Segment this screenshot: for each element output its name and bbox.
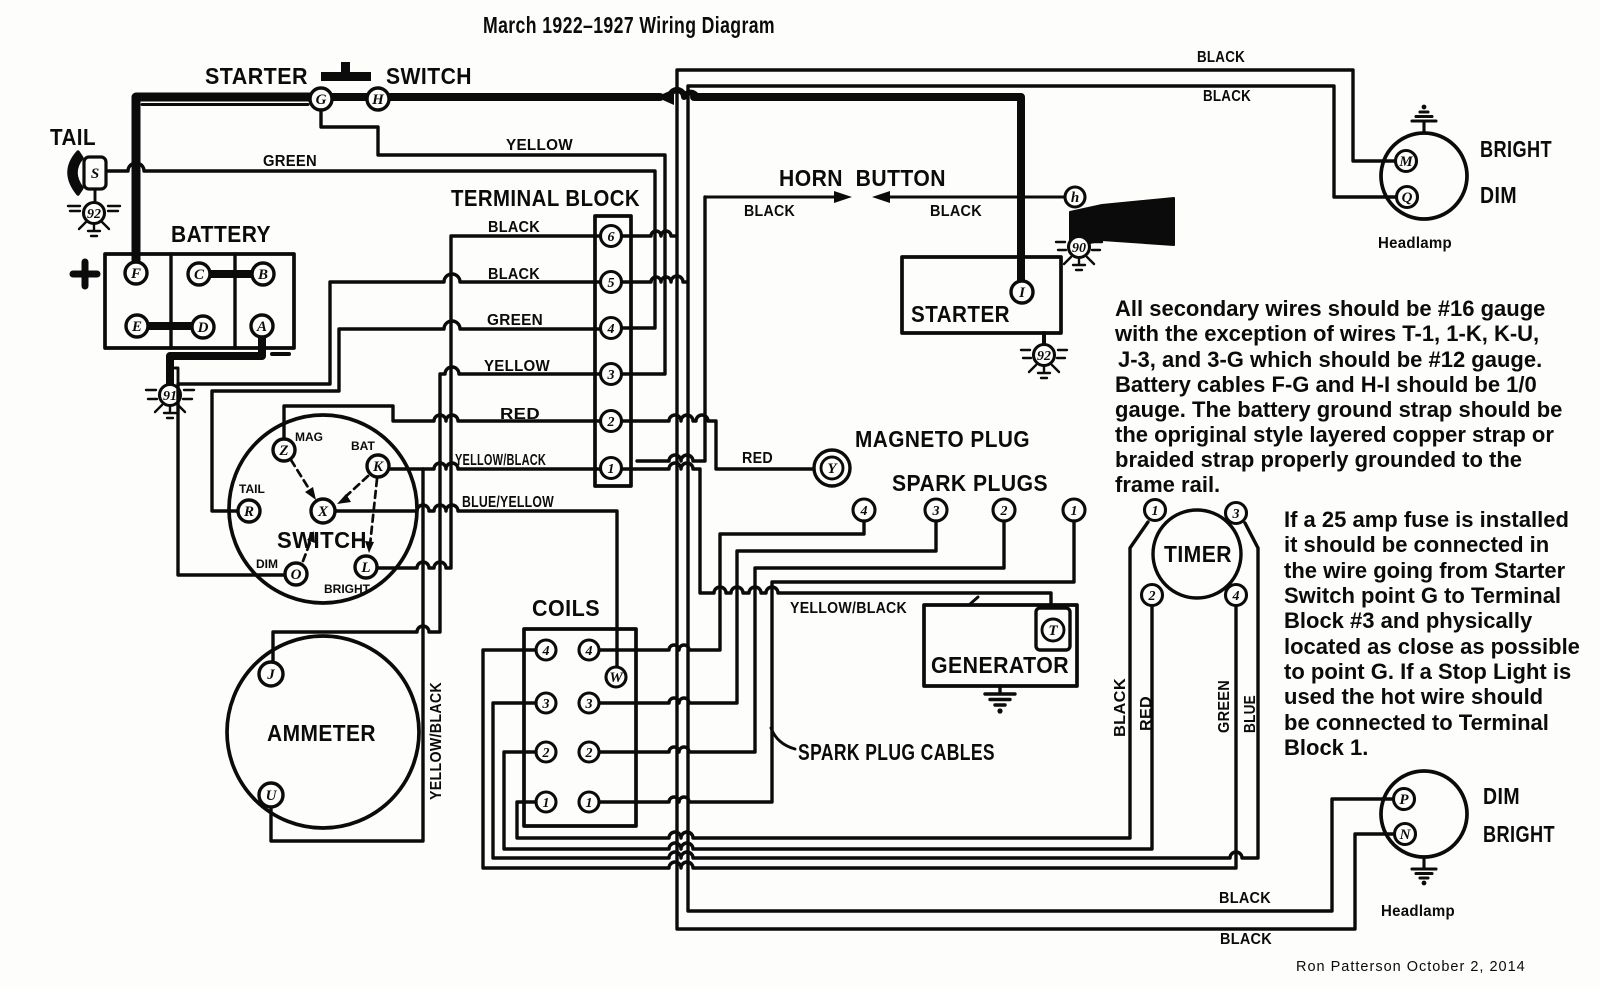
svg-text:YELLOW/BLACK: YELLOW/BLACK <box>790 600 907 617</box>
svg-text:T: T <box>1048 623 1058 639</box>
svg-text:I: I <box>1018 285 1026 301</box>
svg-text:GENERATOR: GENERATOR <box>931 652 1069 678</box>
svg-text:1: 1 <box>1071 504 1078 519</box>
svg-text:BLACK: BLACK <box>1112 678 1129 737</box>
svg-text:Switch point G to Terminal: Switch point G to Terminal <box>1284 583 1561 608</box>
svg-text:E: E <box>131 319 142 335</box>
svg-text:90: 90 <box>1072 241 1086 256</box>
svg-text:U: U <box>266 788 278 804</box>
svg-text:BRIGHT: BRIGHT <box>324 582 371 596</box>
svg-text:W: W <box>609 670 624 686</box>
svg-text:GREEN: GREEN <box>1216 680 1233 733</box>
svg-text:gauge. The battery ground stra: gauge. The battery ground strap should b… <box>1115 397 1562 422</box>
svg-text:4: 4 <box>607 322 615 337</box>
svg-text:Block 1.: Block 1. <box>1284 735 1368 760</box>
svg-text:Battery cables F-G and H-I sho: Battery cables F-G and H-I should be 1/0 <box>1115 372 1537 397</box>
svg-text:TIMER: TIMER <box>1164 541 1232 567</box>
svg-text:S: S <box>91 166 99 182</box>
svg-text:X: X <box>317 504 329 520</box>
svg-text:YELLOW: YELLOW <box>506 137 574 154</box>
svg-text:SWITCH: SWITCH <box>277 527 367 553</box>
svg-text:2: 2 <box>1000 504 1008 519</box>
svg-text:BLACK: BLACK <box>488 219 540 236</box>
svg-text:GREEN: GREEN <box>263 153 317 170</box>
svg-text:with the exception of wires T-: with the exception of wires T-1, 1-K, K-… <box>1114 321 1539 346</box>
svg-text:BLACK: BLACK <box>488 266 540 283</box>
svg-text:DIM: DIM <box>1480 182 1517 208</box>
svg-text:Q: Q <box>1402 190 1413 206</box>
svg-text:All secondary wires should be: All secondary wires should be #16 gauge <box>1115 296 1545 321</box>
svg-text:BATTERY: BATTERY <box>171 221 271 247</box>
svg-text:5: 5 <box>608 276 615 291</box>
svg-text:1: 1 <box>543 796 550 811</box>
svg-text:A: A <box>256 319 267 335</box>
svg-text:TERMINAL BLOCK: TERMINAL BLOCK <box>451 185 640 211</box>
svg-text:H: H <box>371 92 385 108</box>
svg-text:F: F <box>130 266 141 282</box>
svg-text:Headlamp: Headlamp <box>1381 903 1455 920</box>
svg-text:2: 2 <box>1148 589 1156 604</box>
svg-text:Headlamp: Headlamp <box>1378 235 1452 252</box>
svg-text:4: 4 <box>860 504 868 519</box>
svg-text:4: 4 <box>1232 589 1240 604</box>
svg-text:BLACK: BLACK <box>744 203 795 220</box>
svg-text:L: L <box>360 560 370 576</box>
svg-text:DIM: DIM <box>1483 783 1520 809</box>
svg-text:1: 1 <box>586 796 593 811</box>
svg-text:March 1922–1927 Wiring Diagram: March 1922–1927 Wiring Diagram <box>483 12 775 38</box>
svg-text:AMMETER: AMMETER <box>267 720 376 746</box>
svg-text:DIM: DIM <box>256 557 278 571</box>
svg-text:K: K <box>372 459 384 475</box>
svg-text:BRIGHT: BRIGHT <box>1480 136 1552 162</box>
svg-text:TAIL: TAIL <box>50 124 96 150</box>
svg-text:MAG: MAG <box>295 430 323 444</box>
svg-text:J-3, and 3-G which should be: J-3, and 3-G which should be #12 gauge. <box>1118 347 1542 372</box>
svg-text:RED: RED <box>500 406 540 423</box>
svg-text:the wire going from Starter: the wire going from Starter <box>1284 558 1566 583</box>
svg-text:1: 1 <box>1152 504 1159 519</box>
svg-text:BLACK: BLACK <box>1220 931 1272 948</box>
svg-text:GREEN: GREEN <box>487 312 543 329</box>
svg-text:92: 92 <box>87 207 101 222</box>
svg-text:3: 3 <box>542 697 550 712</box>
svg-text:Block #3 and physically: Block #3 and physically <box>1284 608 1533 633</box>
svg-text:BRIGHT: BRIGHT <box>1483 821 1555 847</box>
svg-text:YELLOW: YELLOW <box>484 358 551 375</box>
svg-text:YELLOW/BLACK: YELLOW/BLACK <box>455 452 546 469</box>
svg-text:RED: RED <box>1138 696 1155 731</box>
svg-text:2: 2 <box>585 746 593 761</box>
svg-text:4: 4 <box>542 644 550 659</box>
svg-text:M: M <box>1398 154 1413 170</box>
svg-text:G: G <box>316 92 327 108</box>
svg-text:used the hot wire should: used the hot wire should <box>1284 684 1543 709</box>
svg-text:6: 6 <box>608 230 615 245</box>
svg-text:BLUE/YELLOW: BLUE/YELLOW <box>462 494 554 511</box>
svg-text:D: D <box>197 320 209 336</box>
svg-text:2: 2 <box>607 415 615 430</box>
svg-text:BLUE: BLUE <box>1242 695 1259 733</box>
svg-text:COILS: COILS <box>532 595 600 621</box>
svg-text:TAIL: TAIL <box>239 482 265 496</box>
svg-text:If a 25 amp fuse is installed: If a 25 amp fuse is installed <box>1284 507 1569 532</box>
svg-text:located as close as possible: located as close as possible <box>1284 634 1580 659</box>
svg-text:O: O <box>291 567 302 583</box>
svg-text:1: 1 <box>608 462 615 477</box>
svg-text:4: 4 <box>585 644 593 659</box>
svg-text:SPARK PLUGS: SPARK PLUGS <box>892 470 1048 496</box>
svg-text:be connected to Terminal: be connected to Terminal <box>1284 710 1549 735</box>
svg-text:the opriginal style layered co: the opriginal style layered copper strap… <box>1115 422 1554 447</box>
svg-text:N: N <box>1399 827 1412 843</box>
svg-text:92: 92 <box>1037 349 1051 364</box>
svg-text:R: R <box>243 504 254 520</box>
svg-text:C: C <box>194 267 205 283</box>
svg-text:3: 3 <box>607 368 615 383</box>
svg-text:BLACK: BLACK <box>930 203 982 220</box>
svg-text:STARTER: STARTER <box>205 63 308 89</box>
svg-text:BAT: BAT <box>351 439 375 453</box>
svg-text:MAGNETO PLUG: MAGNETO PLUG <box>855 426 1030 452</box>
svg-text:B: B <box>257 267 268 283</box>
svg-text:RED: RED <box>742 450 773 467</box>
svg-text:3: 3 <box>932 504 940 519</box>
svg-text:frame rail.: frame rail. <box>1115 472 1220 497</box>
svg-text:P: P <box>1399 792 1409 808</box>
svg-text:J: J <box>266 667 275 683</box>
svg-text:it should be connected in: it should be connected in <box>1284 532 1549 557</box>
svg-text:braided strap properly grounde: braided strap properly grounded to the <box>1115 447 1522 472</box>
svg-text:91: 91 <box>163 389 177 404</box>
svg-text:Z: Z <box>278 443 288 459</box>
svg-text:2: 2 <box>542 746 550 761</box>
svg-text:SPARK PLUG CABLES: SPARK PLUG CABLES <box>798 739 995 765</box>
svg-text:BLACK: BLACK <box>1203 88 1251 105</box>
svg-text:BLACK: BLACK <box>1197 49 1245 66</box>
svg-text:h: h <box>1071 190 1079 206</box>
svg-text:BLACK: BLACK <box>1219 890 1271 907</box>
svg-text:to point G. If a Stop Light is: to point G. If a Stop Light is <box>1284 659 1571 684</box>
svg-text:STARTER: STARTER <box>911 301 1010 327</box>
svg-text:YELLOW/BLACK: YELLOW/BLACK <box>428 682 445 800</box>
svg-text:SWITCH: SWITCH <box>386 63 472 89</box>
svg-text:3: 3 <box>1232 507 1240 522</box>
svg-text:Ron Patterson October 2, 2014: Ron Patterson October 2, 2014 <box>1296 959 1526 975</box>
svg-text:3: 3 <box>585 697 593 712</box>
svg-text:HORN BUTTON: HORN BUTTON <box>779 165 946 191</box>
